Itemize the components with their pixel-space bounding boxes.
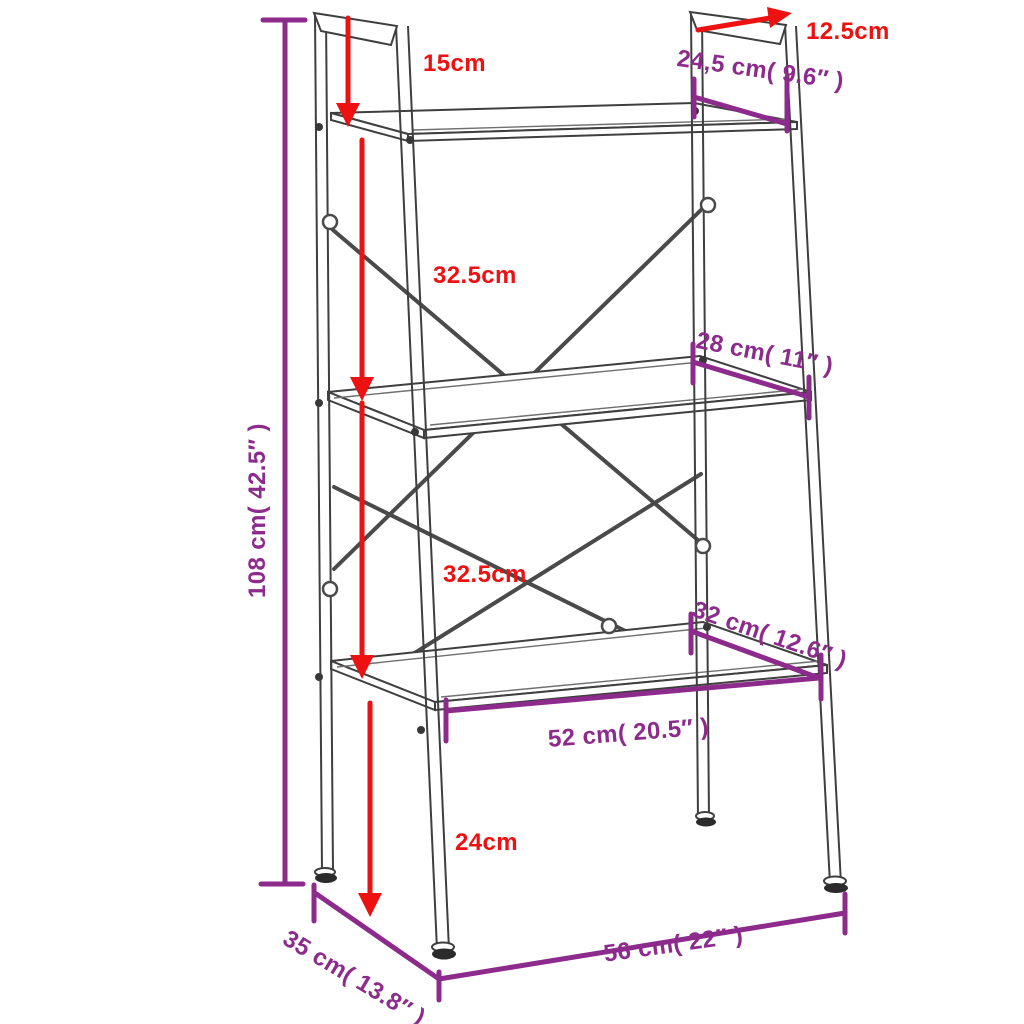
rear-right-leg [691,14,709,818]
cross-braces [333,209,702,664]
dim-label-lower-shelf-gap: 32.5cm [443,561,527,589]
ladder-shelf-dimension-diagram: 15cm 12.5cm 24,5 cm( 9.6″ ) 32.5cm 28 cm… [0,0,1024,1024]
purple-dimension-lines [261,20,845,1000]
legs [315,14,841,950]
feet [315,812,848,960]
rear-left-leg [315,15,333,871]
dim-label-top-gap: 15cm [423,50,486,78]
dim-label-top-offset: 12.5cm [806,18,890,46]
dim-label-leg-clearance: 24cm [455,829,518,857]
red-arrow-heads [336,7,792,917]
dim-label-upper-shelf-gap: 32.5cm [433,262,517,290]
middle-shelf [328,356,811,438]
front-right-leg [785,25,841,884]
front-left-leg [396,26,449,950]
dim-label-overall-height: 108 cm( 42.5″ ) [244,423,272,598]
ladder-shelf-line-art [0,0,1024,1024]
